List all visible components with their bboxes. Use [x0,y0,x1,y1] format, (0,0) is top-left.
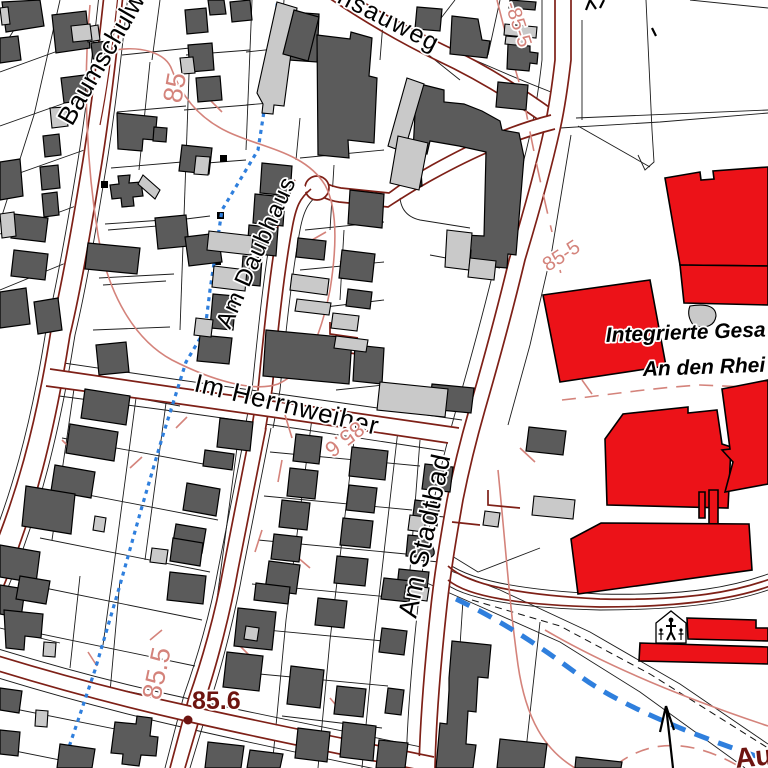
svg-text:85: 85 [157,70,192,105]
svg-text:An den Rhei: An den Rhei [641,354,766,381]
svg-text:Au: Au [733,739,768,768]
svg-text:85.6: 85.6 [192,687,241,715]
